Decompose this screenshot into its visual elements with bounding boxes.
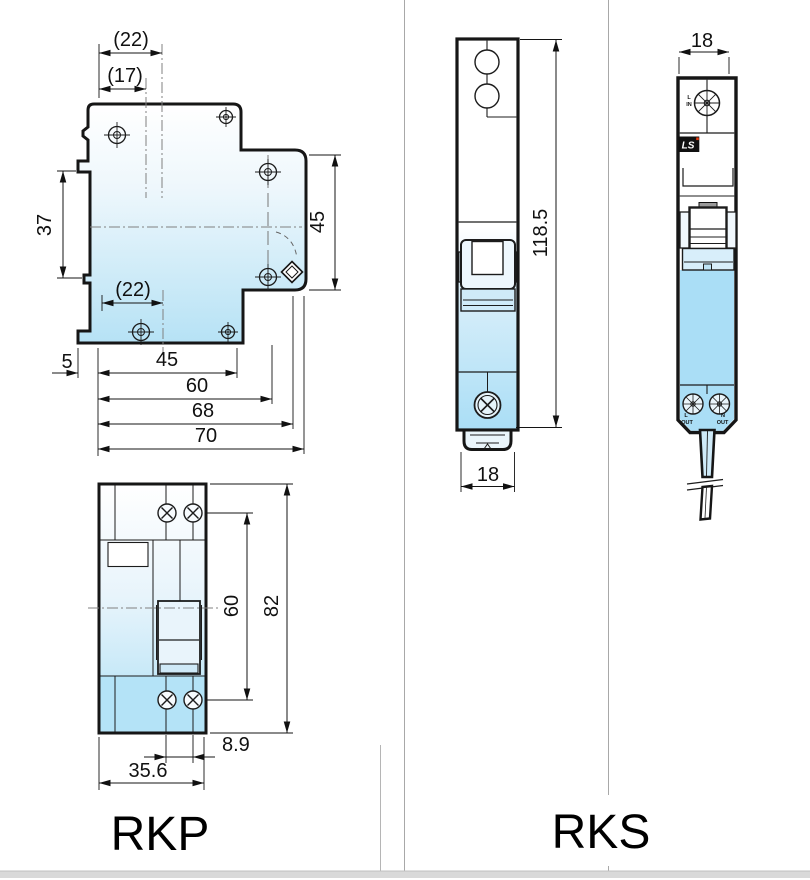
product-label-rks: RKS bbox=[552, 806, 651, 859]
footer-bar bbox=[0, 871, 810, 878]
label-window bbox=[108, 543, 148, 567]
dim-70: 70 bbox=[195, 425, 217, 447]
terminal-screw-icon bbox=[710, 394, 730, 414]
terminal-screw-icon bbox=[158, 691, 176, 709]
terminal-hole bbox=[475, 84, 499, 108]
dim-118-5: 118.5 bbox=[530, 209, 552, 258]
ls-logo-red-mark bbox=[696, 138, 699, 141]
dim-60: 60 bbox=[186, 375, 208, 397]
dim-18-front: 18 bbox=[477, 464, 499, 486]
din-clip-tab bbox=[464, 430, 511, 450]
dim-37: 37 bbox=[34, 214, 56, 236]
terminal-label-n-out-2: OUT bbox=[717, 420, 729, 426]
terminal-label-n-out-1: N bbox=[721, 413, 725, 419]
ls-logo: LS bbox=[678, 137, 699, 153]
dim-82: 82 bbox=[261, 595, 283, 617]
terminal-label-in: IN bbox=[686, 102, 692, 108]
dim-45-bottom: 45 bbox=[156, 349, 178, 371]
terminal-screw-icon bbox=[184, 691, 202, 709]
dim-18-side: 18 bbox=[691, 30, 713, 52]
terminal-label-l-out-2: OUT bbox=[681, 420, 693, 426]
dim-68: 68 bbox=[192, 400, 214, 422]
terminal-screw-icon bbox=[683, 394, 703, 414]
toggle-switch bbox=[459, 240, 516, 311]
dim-5: 5 bbox=[61, 351, 72, 373]
product-label-rkp: RKP bbox=[111, 808, 210, 861]
terminal-screw-icon bbox=[475, 392, 501, 418]
dim-22-bottom: (22) bbox=[115, 279, 151, 301]
toggle-switch bbox=[157, 601, 202, 674]
terminal-screw-icon bbox=[695, 91, 720, 116]
terminal-screw-icon bbox=[184, 504, 202, 522]
dim-60-front: 60 bbox=[221, 595, 243, 617]
terminal-screw-icon bbox=[158, 504, 176, 522]
dim-17: (17) bbox=[107, 65, 143, 87]
dim-8-9: 8.9 bbox=[222, 734, 250, 756]
terminal-hole bbox=[475, 50, 499, 74]
dimension-drawing-sheet: (22) (17) 37 45 (22) 5 45 60 bbox=[0, 0, 810, 880]
dim-35-6: 35.6 bbox=[129, 760, 168, 782]
dim-45-right: 45 bbox=[307, 211, 329, 233]
drawing-svg: (22) (17) 37 45 (22) 5 45 60 bbox=[0, 0, 810, 880]
ls-logo-text: LS bbox=[682, 141, 695, 152]
toggle-switch bbox=[680, 203, 736, 271]
dim-22-top: (22) bbox=[113, 29, 149, 51]
